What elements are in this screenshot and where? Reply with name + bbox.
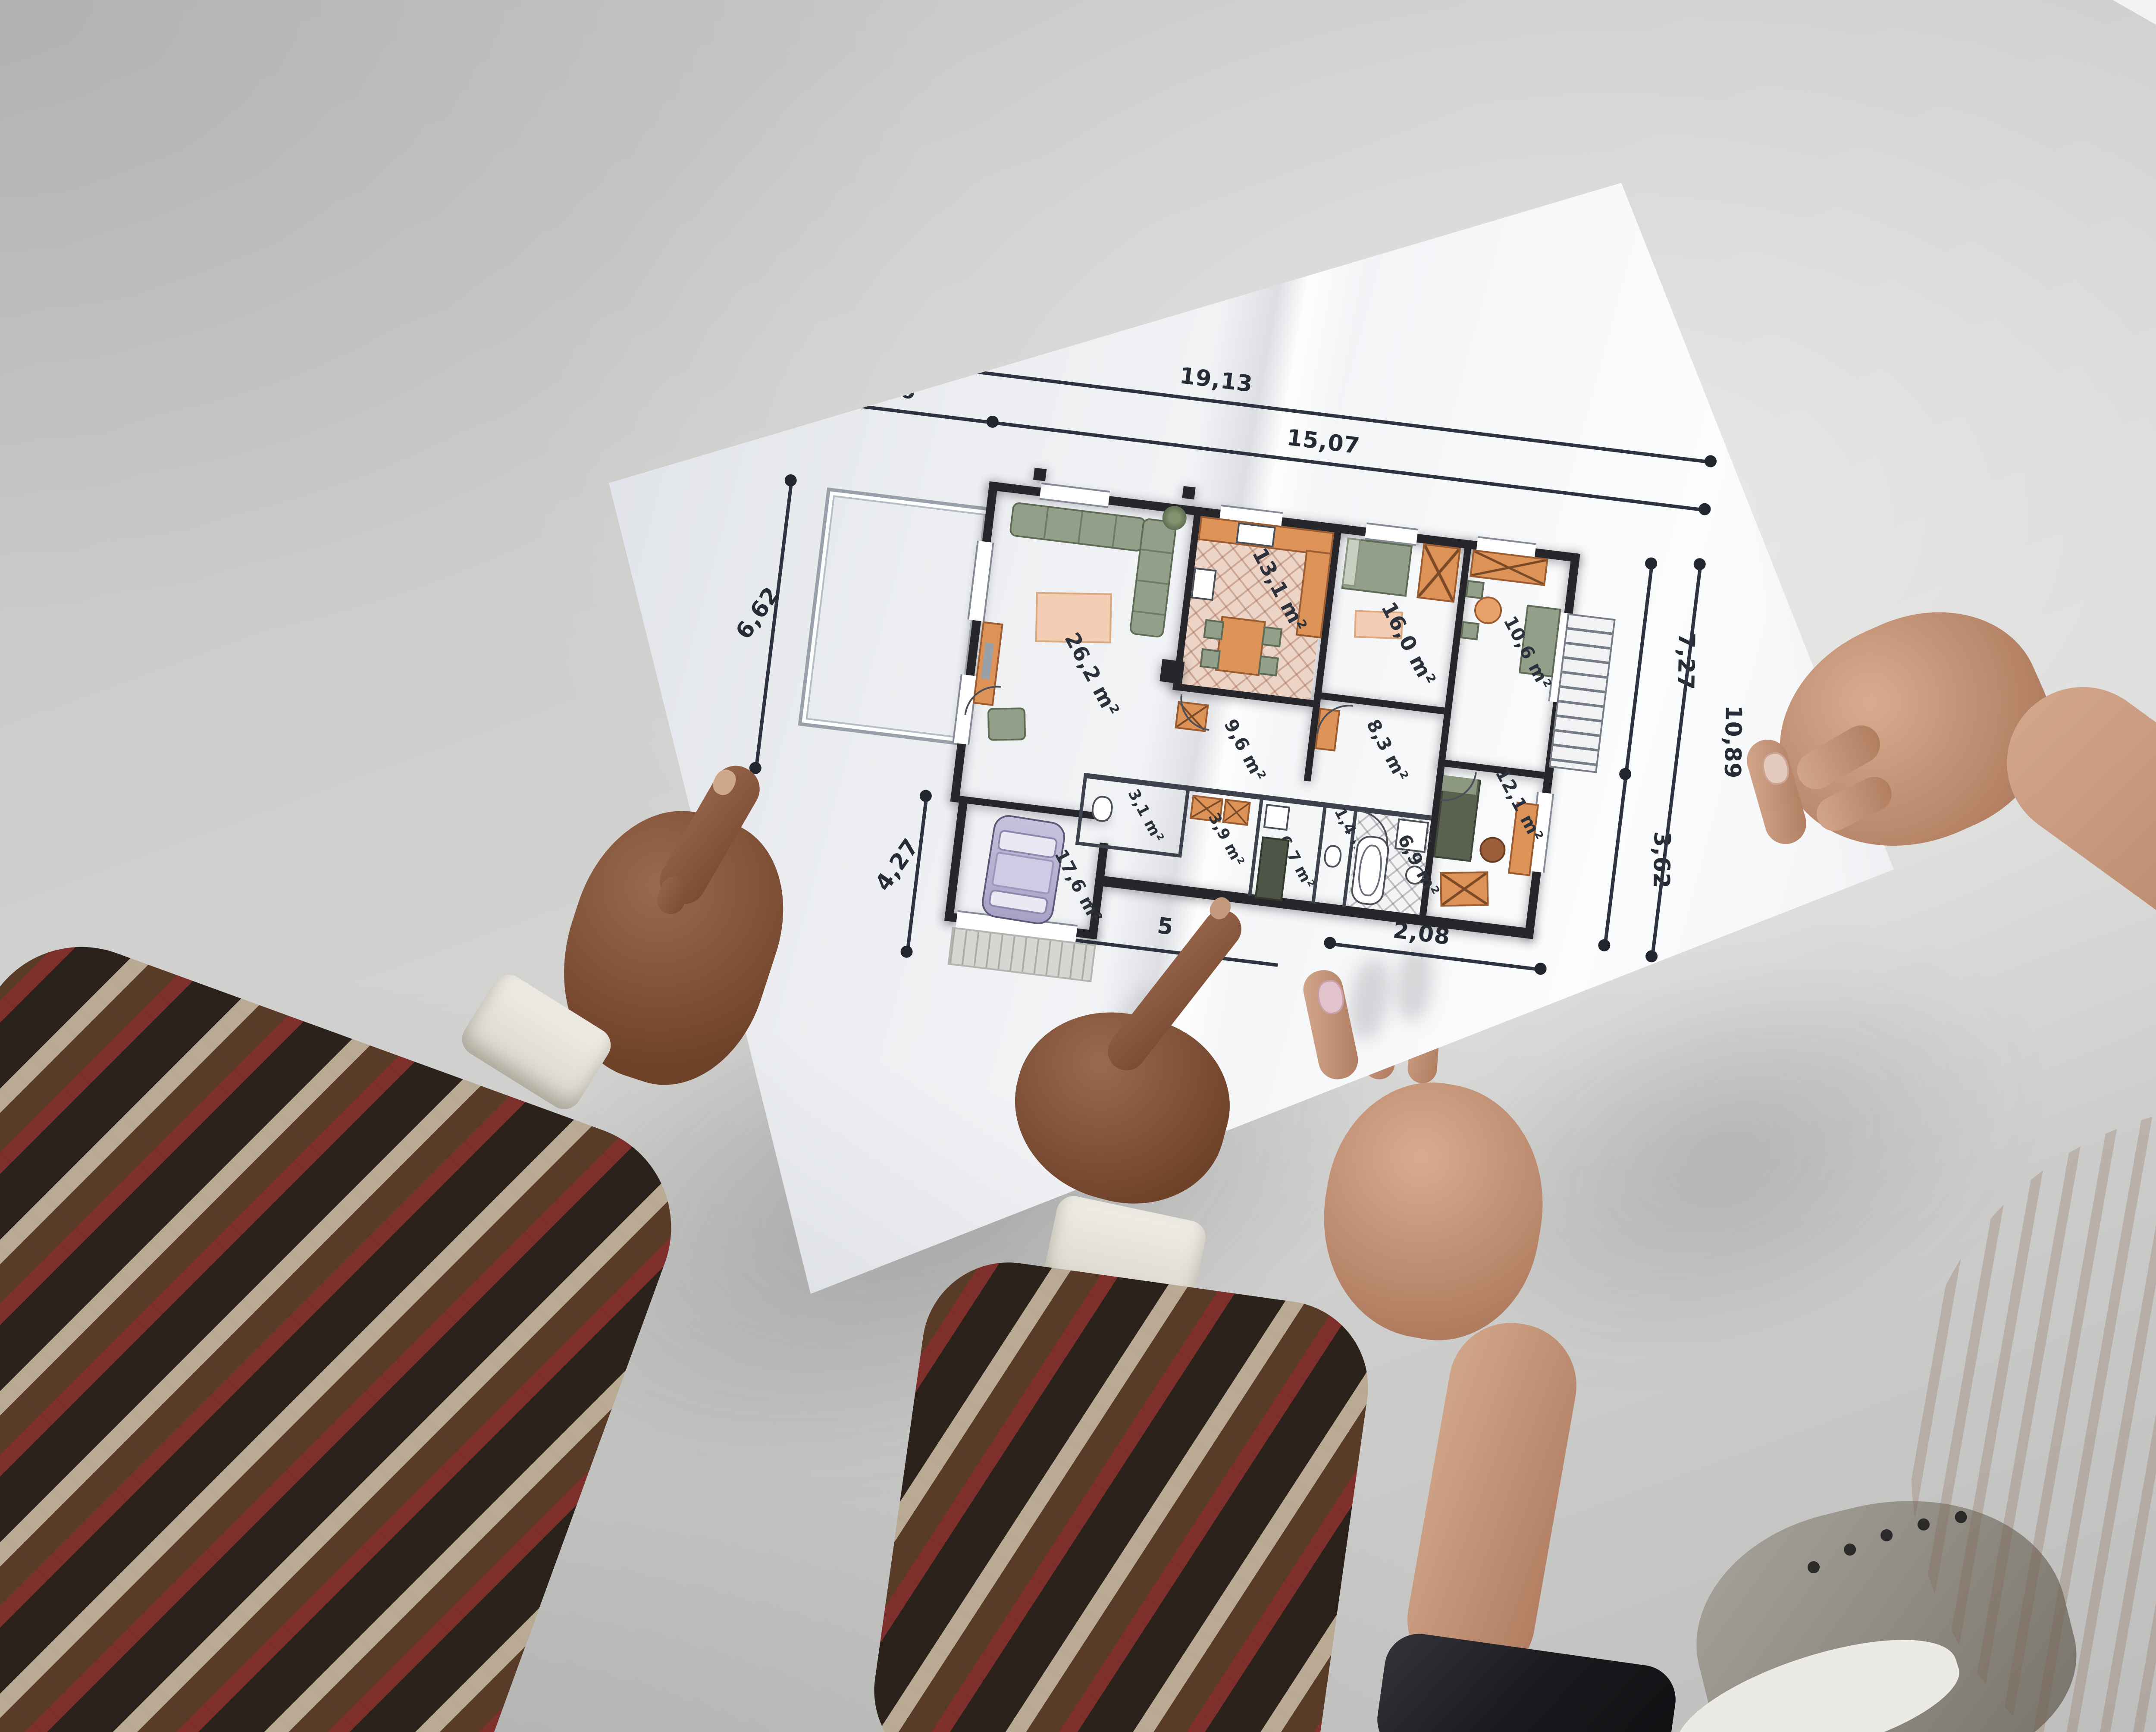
car <box>980 813 1064 922</box>
storage-cabinet <box>1222 799 1250 826</box>
chair <box>1460 621 1480 640</box>
scene: 19,13 4,06 15,07 6,62 4,27 7,27 3,62 <box>0 0 2156 1732</box>
sofa <box>1009 502 1147 552</box>
dimension-dot <box>1693 558 1706 571</box>
round-chair <box>1478 835 1507 864</box>
room-label-wc: 3,1 m² <box>1123 787 1166 846</box>
partition-wall <box>1075 773 1087 845</box>
door-arc <box>1316 701 1353 737</box>
dimension-dot <box>986 415 999 428</box>
dimension-label-total-width: 19,13 <box>1178 364 1254 398</box>
dimension-dot <box>1704 455 1717 468</box>
dimension-line <box>1624 562 1654 773</box>
chair <box>1258 656 1279 677</box>
dimension-dot <box>1598 938 1611 952</box>
toilet <box>1323 844 1343 868</box>
photo-two-people-reviewing-floor-plan: 19,13 4,06 15,07 6,62 4,27 7,27 3,62 <box>0 0 2156 1732</box>
dimension-label-main-width: 15,07 <box>1285 426 1361 461</box>
round-table <box>1473 595 1503 626</box>
window <box>1040 483 1110 508</box>
room-label-hall: 8,3 m² <box>1362 716 1412 785</box>
dimension-line <box>1651 563 1702 957</box>
dimension-dot <box>1619 767 1632 781</box>
rug <box>1440 871 1489 907</box>
washing-machine <box>1263 804 1290 831</box>
post <box>1033 468 1047 481</box>
dimension-line <box>1604 780 1627 944</box>
chimney <box>1159 659 1185 684</box>
wardrobe <box>1416 543 1461 603</box>
partition-wall <box>1178 785 1190 858</box>
dimension-dot <box>1645 950 1658 963</box>
chair <box>1200 648 1221 669</box>
stove <box>1191 567 1216 601</box>
wall <box>944 799 968 920</box>
dimension-label-partial: 5 <box>1156 914 1175 941</box>
dimension-dot <box>919 789 932 803</box>
dimension-line <box>812 398 1709 512</box>
pointing-arm-plaid-sleeve <box>863 1251 1379 1732</box>
chair <box>1465 580 1485 599</box>
chair <box>1261 626 1282 647</box>
entry-mat <box>1255 836 1290 901</box>
room-label-bedroom: 16,0 m² <box>1376 598 1441 690</box>
dimension-label-right-total: 10,89 <box>1718 705 1745 779</box>
dimension-label-left-height: 6,62 <box>732 583 786 644</box>
dimension-dot <box>784 474 797 487</box>
chair <box>1203 619 1224 640</box>
post <box>1182 486 1195 499</box>
dimension-line <box>906 795 928 953</box>
dimension-dot <box>1534 962 1547 976</box>
dimension-dot <box>900 945 913 958</box>
dimension-dot <box>1698 502 1711 516</box>
room-label-corridor: 9,6 m² <box>1219 716 1269 785</box>
wall <box>950 795 1109 821</box>
dimension-dot <box>1323 936 1337 950</box>
dimension-dot <box>1644 557 1658 570</box>
partition-wall <box>1075 841 1178 857</box>
